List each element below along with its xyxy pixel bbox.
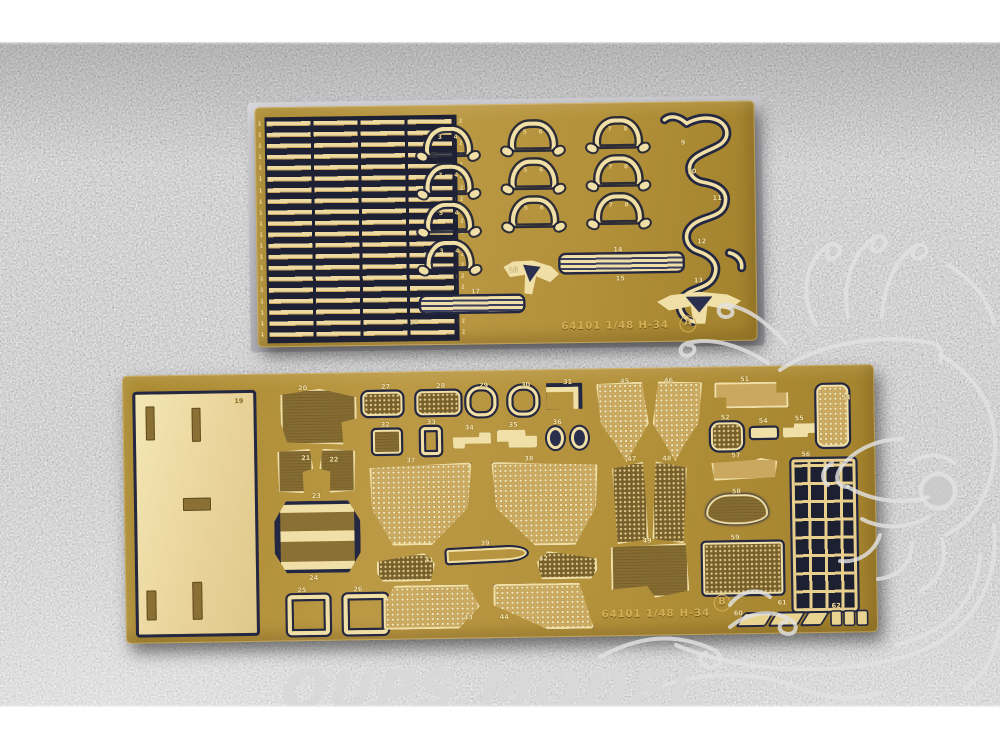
part-number: 46 xyxy=(664,377,673,384)
part-31 xyxy=(546,387,578,409)
part-number: 39 xyxy=(481,540,490,547)
part-5-6: 56 xyxy=(510,121,556,150)
part-27 xyxy=(362,392,402,417)
part-number: 22 xyxy=(329,457,338,464)
part-number: 26 xyxy=(353,586,362,593)
part-7-8: 78 xyxy=(596,194,642,223)
sheet-letter-badge: A xyxy=(679,315,696,332)
part-number: 17 xyxy=(471,288,480,295)
part-number: 51 xyxy=(740,376,749,383)
part-number: 45 xyxy=(620,378,629,385)
part-number: 41 xyxy=(425,557,434,564)
etched-sheet-a: 1 1 1 1 1 1 1 1 1 1 1 1 1 1 1 1 1 1 1 1 … xyxy=(254,101,757,348)
part-number: 12 xyxy=(697,238,706,245)
part-55 xyxy=(783,423,819,438)
part-37 xyxy=(369,462,472,546)
part-number: 60 xyxy=(734,610,743,617)
part-36 xyxy=(571,427,588,449)
part-number: 48 xyxy=(662,455,671,462)
part-17-18 xyxy=(421,296,523,312)
part-39 xyxy=(447,546,528,563)
sheet-code: 64101 1/48 xyxy=(561,321,634,332)
part-number: 36 xyxy=(553,419,562,426)
sheet-code: 64101 1/48 xyxy=(602,609,675,620)
part-number: 30 xyxy=(521,382,530,389)
part-5-6: 56 xyxy=(511,197,557,226)
white-band-bottom xyxy=(0,707,1000,750)
part-5-6: 56 xyxy=(510,159,556,188)
part-19 xyxy=(132,390,260,638)
part-number: 54 xyxy=(759,418,768,425)
part-number: 9 xyxy=(681,139,686,146)
part-59 xyxy=(703,542,784,595)
part-60 xyxy=(738,614,771,626)
part-46 xyxy=(652,381,703,462)
part-number: 59 xyxy=(731,534,740,541)
part-number: 23 xyxy=(312,493,321,500)
part-number: 53 xyxy=(841,394,850,401)
part-58 xyxy=(706,494,768,525)
part-30 xyxy=(508,385,538,415)
part-7-8: 78 xyxy=(595,118,641,147)
part-number: 14 xyxy=(613,246,622,253)
fret-part xyxy=(845,611,854,624)
part-47 xyxy=(611,462,648,545)
part-25 xyxy=(287,595,330,636)
kit-code: H-34 xyxy=(680,609,711,619)
part-number: 29 xyxy=(479,382,488,389)
part-36 xyxy=(547,427,564,449)
part-number: 32 xyxy=(381,422,390,429)
part-number: 10 xyxy=(687,168,696,175)
fret-part xyxy=(858,611,867,624)
part-number: 56 xyxy=(801,451,810,458)
part-48 xyxy=(651,461,688,544)
part-number: 35 xyxy=(509,422,518,429)
part-23-24 xyxy=(274,500,361,573)
part-number: 33 xyxy=(427,419,436,426)
part-51 xyxy=(714,381,788,408)
part-number: 47 xyxy=(627,456,636,463)
part-16 xyxy=(500,250,561,299)
part-number: 61 xyxy=(778,600,787,607)
part-38 xyxy=(491,460,598,546)
part-52 xyxy=(711,422,743,450)
part-number: 58 xyxy=(732,488,741,495)
part-number: 57 xyxy=(731,452,740,459)
kit-code: H-34 xyxy=(638,321,669,331)
part-number: 18 xyxy=(409,319,418,326)
part-49 xyxy=(611,543,690,598)
part-43 xyxy=(383,584,480,630)
part-29 xyxy=(466,386,496,416)
part-56 xyxy=(791,458,857,611)
part-number: 15 xyxy=(616,275,625,282)
part-61 xyxy=(770,613,803,625)
part-28 xyxy=(416,391,460,416)
part-number: 43 xyxy=(464,614,473,621)
part-number: 38 xyxy=(524,455,533,462)
part-number: 16 xyxy=(509,267,518,274)
part-7-8: 78 xyxy=(595,156,641,185)
part-number: 34 xyxy=(465,424,474,431)
part-32 xyxy=(373,430,401,454)
part-20 xyxy=(280,388,357,445)
fret-part xyxy=(832,612,841,625)
part-35 xyxy=(497,429,537,448)
part-57 xyxy=(711,458,777,481)
part-tube-9-12 xyxy=(642,107,755,321)
part-number: 31 xyxy=(563,379,572,386)
part-number-column: 1 1 1 1 1 1 1 1 1 1 1 1 1 1 1 1 1 1 1 1 xyxy=(256,119,267,341)
part-54 xyxy=(751,428,777,438)
part-number: 27 xyxy=(381,384,390,391)
part-number: 28 xyxy=(436,383,445,390)
part-number: 13 xyxy=(694,277,703,284)
part-number: 49 xyxy=(643,538,652,545)
part-number: 52 xyxy=(721,414,730,421)
part-number: 11 xyxy=(713,195,722,202)
part-number: 20 xyxy=(298,385,307,392)
part-number: 55 xyxy=(795,415,804,422)
part-number: 44 xyxy=(500,614,509,621)
part-number: 37 xyxy=(406,457,415,464)
part-14-15 xyxy=(560,254,682,273)
part-45 xyxy=(596,382,649,463)
part-number: 62 xyxy=(832,603,841,610)
etched-sheet-b: 19 20 21 22 23 24 25 26 27 28 29 30 31 3… xyxy=(122,364,878,644)
part-number: 24 xyxy=(309,575,318,582)
part-62 xyxy=(802,613,827,624)
part-number: 21 xyxy=(301,455,310,462)
part-number: 42 xyxy=(539,555,548,562)
part-33 xyxy=(421,427,441,455)
part-34 xyxy=(453,432,491,449)
product-photo: 1 1 1 1 1 1 1 1 1 1 1 1 1 1 1 1 1 1 1 1 … xyxy=(0,0,1000,750)
white-band-top xyxy=(0,0,1000,42)
part-44 xyxy=(493,583,594,631)
part-number: 25 xyxy=(297,587,306,594)
part-26 xyxy=(343,594,388,635)
part-number: 19 xyxy=(234,398,243,405)
sheet-letter-badge: B xyxy=(713,594,730,611)
